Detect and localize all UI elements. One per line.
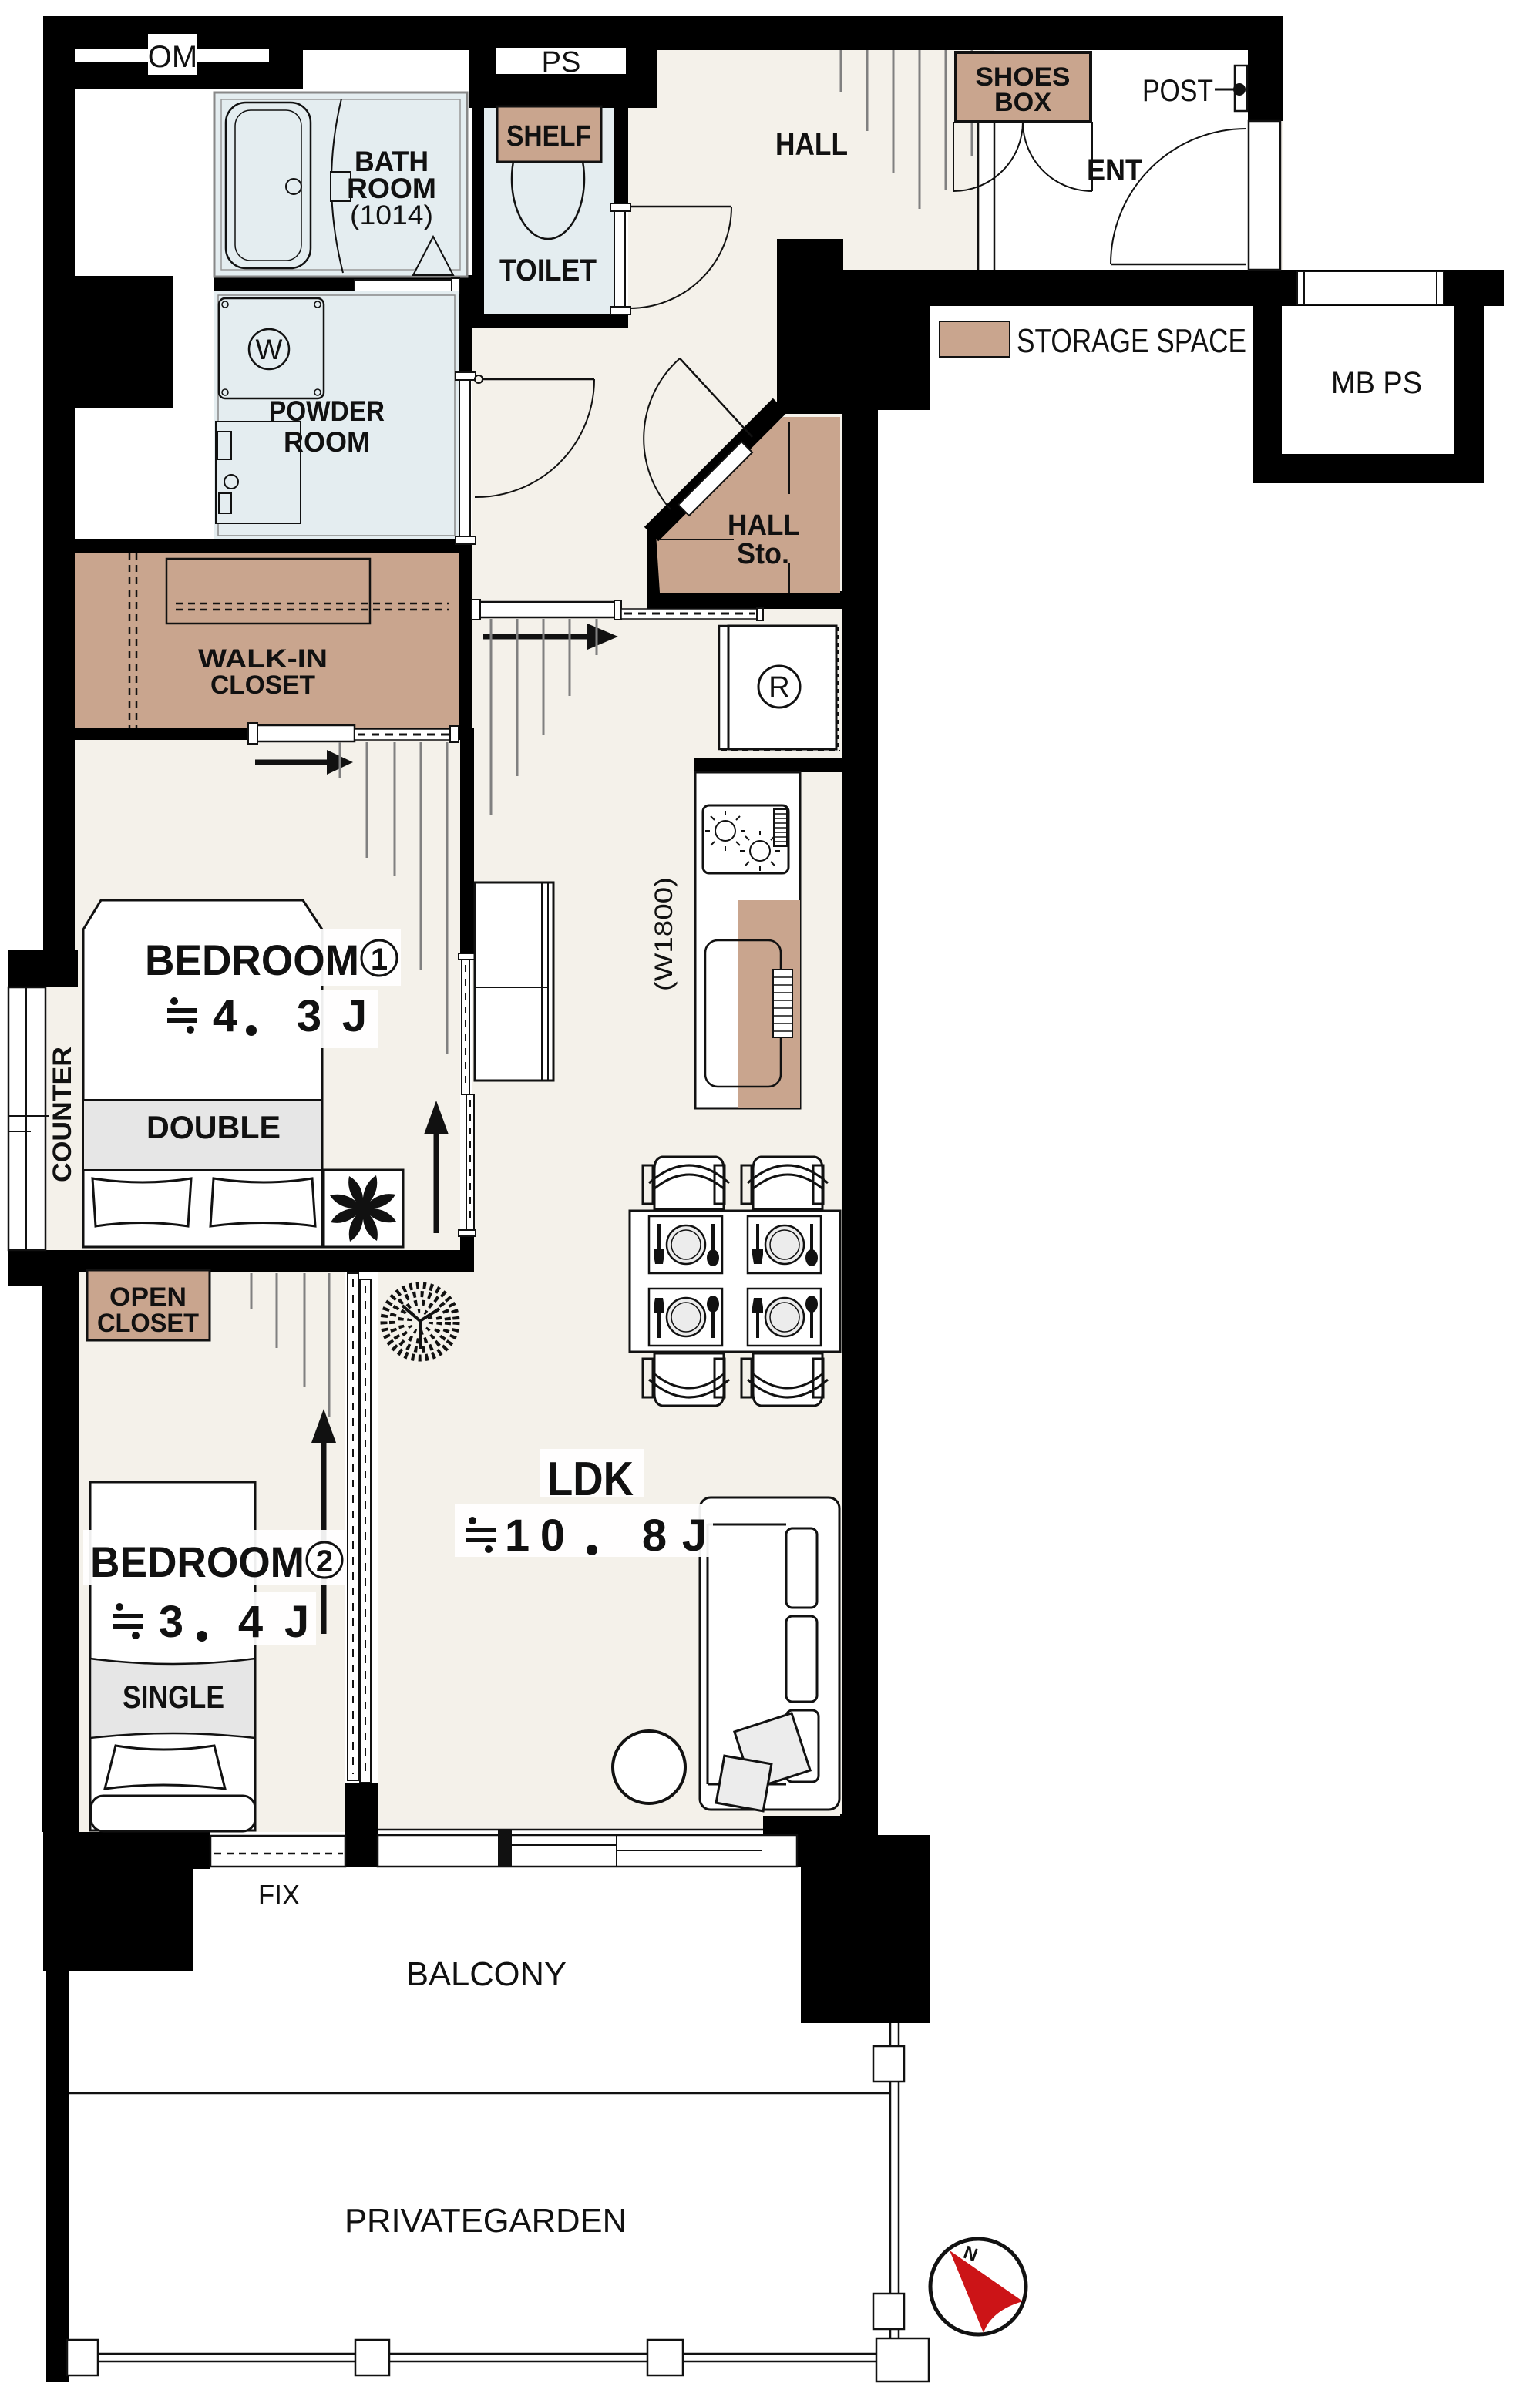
svg-text:PRIVATEGARDEN: PRIVATEGARDEN (345, 2202, 627, 2240)
svg-text:MB PS: MB PS (1331, 366, 1422, 400)
svg-text:SHELF: SHELF (506, 120, 591, 153)
svg-text:LDK: LDK (547, 1453, 634, 1506)
svg-text:J: J (342, 991, 367, 1041)
svg-text:(W1800): (W1800) (650, 877, 678, 991)
svg-text:Sto.: Sto. (737, 538, 789, 570)
svg-text:3: 3 (159, 1597, 183, 1647)
svg-text:R: R (768, 671, 789, 704)
svg-text:ENT: ENT (1087, 153, 1142, 187)
svg-text:HALL: HALL (728, 509, 800, 542)
svg-text:STORAGE SPACE: STORAGE SPACE (1017, 322, 1246, 360)
svg-text:W: W (256, 334, 283, 365)
svg-text:SINGLE: SINGLE (123, 1679, 224, 1715)
svg-text:POWDER: POWDER (269, 395, 385, 427)
svg-text:2: 2 (316, 1545, 333, 1578)
svg-text:3: 3 (297, 991, 321, 1041)
svg-text:BEDROOM: BEDROOM (90, 1538, 304, 1586)
svg-text:BOX: BOX (994, 88, 1051, 117)
svg-text:OPEN: OPEN (109, 1282, 187, 1312)
svg-text:J: J (284, 1597, 309, 1647)
svg-text:DOUBLE: DOUBLE (146, 1109, 281, 1145)
svg-text:4: 4 (213, 991, 237, 1041)
svg-text:BEDROOM: BEDROOM (145, 936, 359, 984)
svg-text:4: 4 (238, 1597, 263, 1647)
svg-text:0: 0 (540, 1511, 565, 1561)
svg-text:COUNTER: COUNTER (48, 1047, 77, 1182)
svg-text:OM: OM (148, 40, 197, 74)
svg-text:BALCONY: BALCONY (406, 1955, 567, 1993)
svg-text:(1014): (1014) (350, 200, 433, 230)
svg-text:1: 1 (505, 1511, 530, 1561)
svg-text:ROOM: ROOM (284, 426, 370, 458)
svg-text:PS: PS (542, 46, 581, 79)
svg-text:1: 1 (371, 943, 388, 976)
svg-text:J: J (682, 1511, 707, 1561)
svg-text:TOILET: TOILET (499, 254, 597, 287)
svg-text:8: 8 (642, 1511, 667, 1561)
svg-text:CLOSET: CLOSET (210, 671, 315, 700)
svg-text:HALL: HALL (775, 126, 848, 162)
svg-text:POST: POST (1142, 74, 1213, 108)
svg-text:CLOSET: CLOSET (97, 1309, 199, 1338)
svg-text:WALK-IN: WALK-IN (198, 644, 328, 674)
svg-text:FIX: FIX (258, 1879, 300, 1911)
svg-text:ROOM: ROOM (347, 173, 436, 204)
